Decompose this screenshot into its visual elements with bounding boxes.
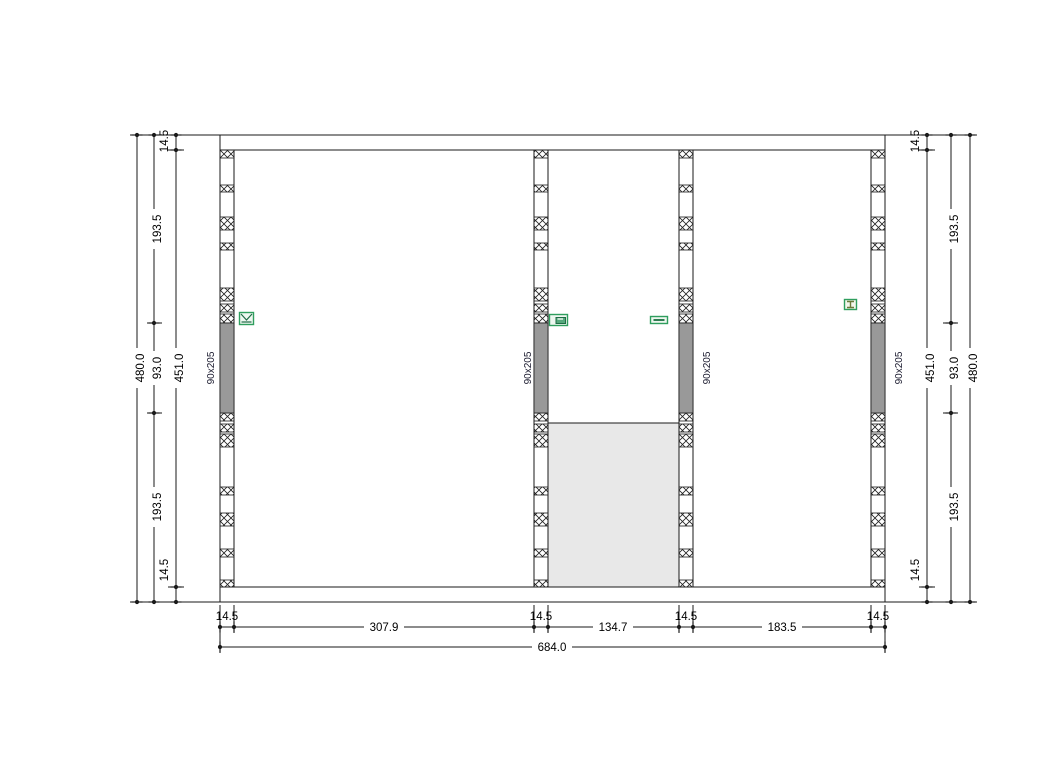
blocking-hatch: [679, 314, 693, 323]
blocking-hatch: [534, 487, 548, 495]
dim-label-right-seg-bot: 193.5: [948, 487, 961, 527]
dim-label-bottom-5: 183.5: [762, 621, 802, 634]
blocking-hatch: [871, 434, 885, 447]
dim-label-left-seg-top: 193.5: [151, 209, 164, 249]
svg-text:134.7: 134.7: [599, 622, 628, 634]
dim-tick-dot: [677, 625, 681, 629]
dim-tick-dot: [152, 411, 156, 415]
cad-viewport[interactable]: 480.0 193.5 93.0 193.5 451.0 14.5 14.5 4…: [0, 0, 1040, 760]
blocking-hatch: [871, 243, 885, 250]
dim-tick-dot: [174, 600, 178, 604]
blocking-hatch: [220, 314, 234, 323]
blocking-hatch: [679, 150, 693, 158]
dim-tick-dot: [152, 321, 156, 325]
blocking-hatch: [679, 424, 693, 432]
blocking-hatch: [679, 288, 693, 301]
wall-framing-drawing[interactable]: 480.0 193.5 93.0 193.5 451.0 14.5 14.5 4…: [0, 0, 1040, 760]
dim-tick-dot: [925, 600, 929, 604]
svg-text:307.9: 307.9: [370, 622, 399, 634]
blocking-hatch: [679, 549, 693, 557]
blocking-hatch: [534, 304, 548, 312]
dim-tick-dot: [152, 133, 156, 137]
dim-label-left-bottom-plate: 14.5: [159, 559, 171, 581]
blocking-hatch: [871, 513, 885, 526]
stud-size-label-3: 90x205: [702, 351, 713, 384]
blocking-hatch: [220, 288, 234, 301]
dim-label-left-inner: 451.0: [173, 348, 186, 388]
blocking-hatch: [679, 434, 693, 447]
blocking-hatch: [534, 549, 548, 557]
svg-text:183.5: 183.5: [768, 622, 797, 634]
solid-block[interactable]: [871, 323, 885, 413]
dim-tick-dot: [546, 625, 550, 629]
dim-tick-dot: [174, 133, 178, 137]
blocking-hatch: [679, 487, 693, 495]
blocking-hatch: [871, 185, 885, 192]
dim-label-bottom-overall: 684.0: [532, 641, 572, 654]
wall-opening[interactable]: [548, 423, 679, 587]
blocking-hatch: [534, 314, 548, 323]
blocking-hatch: [220, 185, 234, 192]
dim-label-right-seg-mid: 93.0: [948, 351, 961, 385]
flag-marker-icon[interactable]: [550, 315, 568, 326]
blocking-hatch: [534, 424, 548, 432]
blocking-hatch: [534, 217, 548, 230]
blocking-hatch: [871, 150, 885, 158]
dim-label-bottom-4: 14.5: [675, 611, 697, 623]
dim-label-bottom-3: 134.7: [593, 621, 633, 634]
dim-tick-dot: [949, 133, 953, 137]
svg-text:14.5: 14.5: [910, 559, 922, 581]
svg-text:90x205: 90x205: [894, 351, 905, 384]
svg-text:14.5: 14.5: [910, 130, 922, 152]
blocking-hatch: [871, 413, 885, 421]
dim-tick-dot: [691, 625, 695, 629]
solid-block[interactable]: [679, 323, 693, 413]
blocking-hatch: [220, 434, 234, 447]
ibeam-marker-icon[interactable]: [845, 300, 857, 310]
svg-text:93.0: 93.0: [949, 357, 961, 379]
dim-tick-dot: [218, 625, 222, 629]
blocking-hatch: [871, 314, 885, 323]
envelope-marker-icon[interactable]: [240, 313, 254, 325]
dim-tick-dot: [925, 585, 929, 589]
svg-text:14.5: 14.5: [159, 559, 171, 581]
blocking-hatch: [534, 580, 548, 587]
svg-text:193.5: 193.5: [152, 215, 164, 244]
svg-text:451.0: 451.0: [174, 354, 186, 383]
dim-label-left-overall: 480.0: [134, 348, 147, 388]
dim-tick-dot: [218, 645, 222, 649]
blocking-hatch: [679, 513, 693, 526]
stud-size-label-2: 90x205: [523, 351, 534, 384]
dim-tick-dot: [949, 411, 953, 415]
dim-tick-dot: [152, 600, 156, 604]
svg-text:480.0: 480.0: [968, 354, 980, 383]
blocking-hatch: [534, 185, 548, 192]
dim-label-left-top-plate: 14.5: [159, 130, 171, 152]
svg-text:193.5: 193.5: [949, 493, 961, 522]
svg-text:193.5: 193.5: [152, 493, 164, 522]
svg-text:193.5: 193.5: [949, 215, 961, 244]
blocking-hatch: [220, 413, 234, 421]
dim-tick-dot: [949, 600, 953, 604]
solid-block[interactable]: [220, 323, 234, 413]
dim-label-bottom-6: 14.5: [867, 611, 889, 623]
blocking-hatch: [220, 549, 234, 557]
blocking-hatch: [220, 424, 234, 432]
dim-tick-dot: [135, 600, 139, 604]
dim-tick-dot: [883, 645, 887, 649]
top-plate[interactable]: [220, 135, 885, 150]
blocking-hatch: [220, 580, 234, 587]
blocking-hatch: [679, 413, 693, 421]
blocking-hatch: [220, 487, 234, 495]
svg-text:93.0: 93.0: [152, 357, 164, 379]
dim-tick-dot: [869, 625, 873, 629]
blocking-hatch: [220, 513, 234, 526]
blocking-hatch: [679, 217, 693, 230]
blocking-hatch: [220, 304, 234, 312]
blocking-hatch: [679, 185, 693, 192]
minus-marker-icon[interactable]: [651, 317, 668, 324]
dim-tick-dot: [174, 585, 178, 589]
svg-text:451.0: 451.0: [925, 354, 937, 383]
stud-size-label-4: 90x205: [894, 351, 905, 384]
dim-tick-dot: [968, 133, 972, 137]
solid-block[interactable]: [534, 323, 548, 413]
svg-text:480.0: 480.0: [135, 354, 147, 383]
dim-label-right-overall: 480.0: [967, 348, 980, 388]
dim-tick-dot: [949, 321, 953, 325]
svg-text:684.0: 684.0: [538, 642, 567, 654]
dim-label-left-seg-mid: 93.0: [151, 351, 164, 385]
dim-label-bottom-2: 14.5: [530, 611, 552, 623]
dim-tick-dot: [883, 625, 887, 629]
dim-label-bottom-1: 307.9: [364, 621, 404, 634]
blocking-hatch: [871, 288, 885, 301]
blocking-hatch: [534, 243, 548, 250]
bottom-plate[interactable]: [220, 587, 885, 602]
blocking-hatch: [220, 243, 234, 250]
blocking-hatch: [534, 413, 548, 421]
blocking-hatch: [871, 549, 885, 557]
svg-text:14.5: 14.5: [159, 130, 171, 152]
blocking-hatch: [220, 217, 234, 230]
dim-label-right-inner: 451.0: [924, 348, 937, 388]
dim-tick-dot: [925, 148, 929, 152]
dim-tick-dot: [174, 148, 178, 152]
svg-text:90x205: 90x205: [702, 351, 713, 384]
blocking-hatch: [534, 150, 548, 158]
dim-label-right-top-plate: 14.5: [910, 130, 922, 152]
svg-text:90x205: 90x205: [523, 351, 534, 384]
dim-tick-dot: [135, 133, 139, 137]
blocking-hatch: [871, 424, 885, 432]
dim-label-bottom-0: 14.5: [216, 611, 238, 623]
dim-label-right-seg-top: 193.5: [948, 209, 961, 249]
blocking-hatch: [679, 580, 693, 587]
blocking-hatch: [871, 487, 885, 495]
blocking-hatch: [534, 434, 548, 447]
dim-tick-dot: [532, 625, 536, 629]
blocking-hatch: [679, 243, 693, 250]
dim-tick-dot: [925, 133, 929, 137]
svg-text:90x205: 90x205: [206, 351, 217, 384]
blocking-hatch: [220, 150, 234, 158]
blocking-hatch: [534, 288, 548, 301]
blocking-hatch: [534, 513, 548, 526]
blocking-hatch: [871, 217, 885, 230]
blocking-hatch: [871, 304, 885, 312]
stud-size-label-1: 90x205: [206, 351, 217, 384]
blocking-hatch: [679, 304, 693, 312]
dim-label-left-seg-bot: 193.5: [151, 487, 164, 527]
dim-label-right-bottom-plate: 14.5: [910, 559, 922, 581]
blocking-hatch: [871, 580, 885, 587]
dim-tick-dot: [968, 600, 972, 604]
dim-tick-dot: [232, 625, 236, 629]
